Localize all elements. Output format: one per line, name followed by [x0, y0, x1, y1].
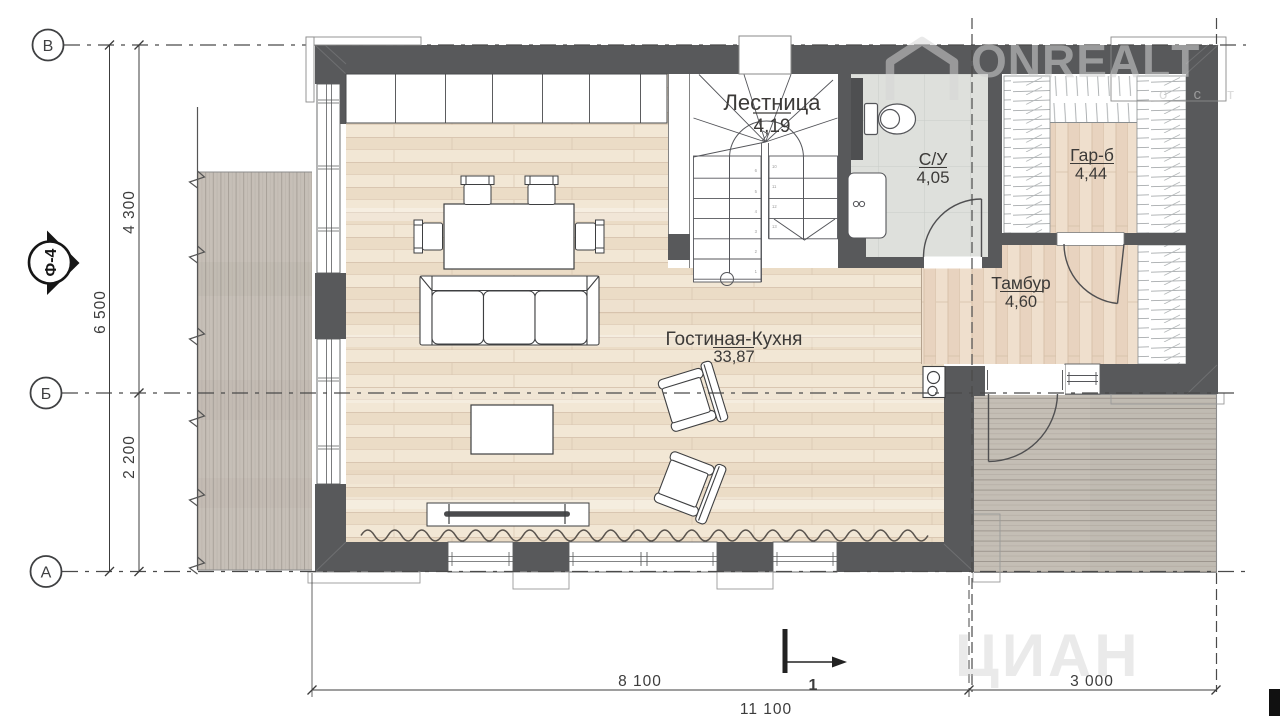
svg-text:1: 1: [809, 677, 818, 694]
svg-text:11 100: 11 100: [740, 701, 792, 716]
svg-text:4,19: 4,19: [754, 116, 791, 137]
svg-text:4,44: 4,44: [1075, 165, 1107, 183]
svg-text:С/У: С/У: [919, 149, 949, 169]
svg-text:Гар-б: Гар-б: [1070, 145, 1114, 165]
svg-text:А: А: [41, 565, 52, 582]
svg-text:Гостиная-Кухня: Гостиная-Кухня: [666, 329, 803, 350]
svg-text:ONREALТ: ONREALТ: [971, 35, 1200, 87]
svg-text:13: 13: [772, 224, 777, 229]
svg-text:10: 10: [772, 164, 777, 169]
svg-text:Тамбур: Тамбур: [991, 273, 1050, 293]
svg-text:12: 12: [772, 204, 777, 209]
svg-text:33,87: 33,87: [713, 348, 754, 366]
svg-text:Ф-4: Ф-4: [43, 248, 60, 276]
svg-text:2 200: 2 200: [121, 435, 138, 479]
svg-text:В: В: [43, 38, 54, 55]
svg-text:4,05: 4,05: [916, 168, 949, 187]
svg-text:4 300: 4 300: [121, 190, 138, 234]
svg-text:4,60: 4,60: [1005, 293, 1037, 311]
svg-text:11: 11: [772, 184, 777, 189]
svg-text:о с т: о с т: [1159, 86, 1245, 103]
svg-text:ЦИАН: ЦИАН: [955, 622, 1141, 689]
svg-text:6 500: 6 500: [92, 290, 109, 334]
svg-text:Б: Б: [41, 386, 52, 403]
svg-text:Лестница: Лестница: [723, 90, 821, 115]
svg-text:8 100: 8 100: [618, 673, 662, 690]
